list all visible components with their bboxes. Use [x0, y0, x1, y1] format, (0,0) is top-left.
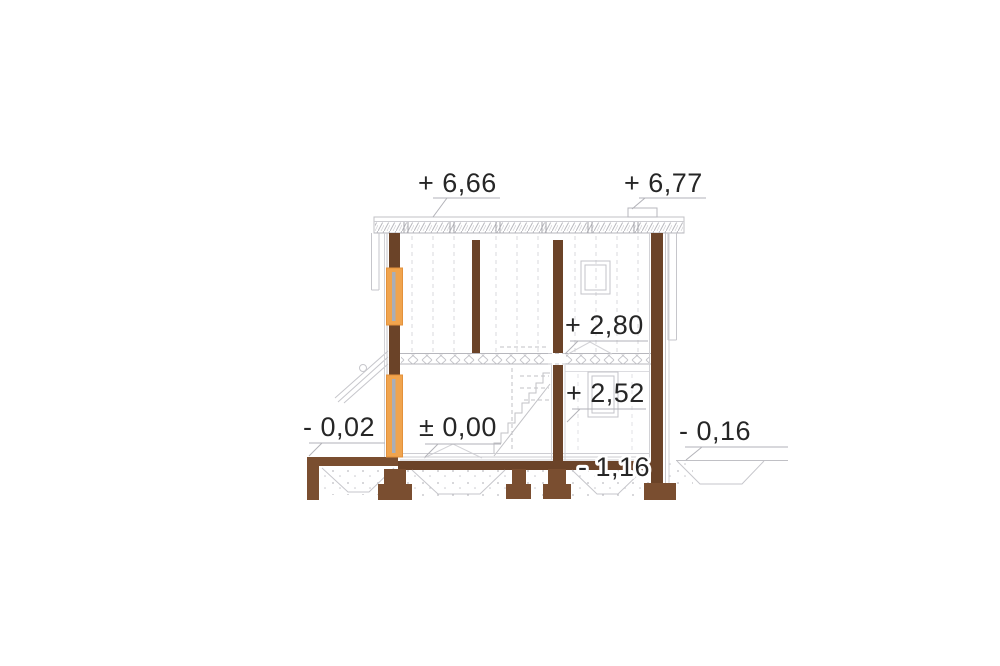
- window-lower: [387, 375, 403, 457]
- level-marker-ground-floor: [425, 444, 501, 457]
- level-marker-grade: [685, 447, 788, 460]
- right-wall: [650, 233, 670, 483]
- level-label-chimney: + 6,77: [624, 168, 703, 198]
- level-marker-chimney: [632, 198, 706, 209]
- section-drawing-canvas: + 6,66 + 6,77 + 2,80 + 2,52 - 0,02 ± 0,0…: [0, 0, 1000, 666]
- level-label-ground-floor: ± 0,00: [419, 412, 497, 442]
- level-label-terrace: - 0,02: [303, 412, 375, 442]
- interior-wall: [552, 240, 566, 461]
- level-label-ceiling: + 2,80: [565, 310, 644, 340]
- glazing-upper: [392, 272, 396, 321]
- level-label-roof-eave: + 6,66: [418, 168, 497, 198]
- section-drawing: + 6,66 + 6,77 + 2,80 + 2,52 - 0,02 ± 0,0…: [0, 0, 1000, 666]
- left-wall: [385, 233, 403, 457]
- level-marker-roof-eave: [433, 198, 500, 217]
- footing-stair-stub: [512, 469, 526, 484]
- stair-stringer: [494, 384, 550, 456]
- footing-mid-stub: [548, 469, 566, 484]
- level-marker-terrace: [309, 443, 385, 456]
- floor-joists-left: [401, 355, 547, 364]
- floor-joists-right: [566, 355, 650, 364]
- level-label-foundation: - 1,16: [578, 452, 650, 482]
- footing-stair-base: [506, 484, 531, 499]
- level-label-upper-floor: + 2,52: [566, 378, 645, 408]
- interior-column: [472, 240, 480, 353]
- footing-mid-base: [543, 484, 571, 499]
- eave-edge-left: [372, 233, 380, 290]
- level-marker-upper-floor: [567, 409, 646, 422]
- window-upper: [387, 268, 403, 325]
- stair-steps: [494, 373, 550, 453]
- level-marker-ceiling: [565, 341, 648, 354]
- level-label-grade: - 0,16: [679, 416, 751, 446]
- footing-right-base: [644, 483, 676, 500]
- porch-roof: [335, 351, 388, 403]
- footing-left-stub: [384, 469, 406, 484]
- floor-band-stairwell-dashed: [548, 354, 565, 365]
- roof-insulation-hatch: [375, 223, 683, 233]
- glazing-lower: [392, 379, 396, 453]
- floor-band: [400, 354, 651, 365]
- footing-left-base: [378, 484, 412, 500]
